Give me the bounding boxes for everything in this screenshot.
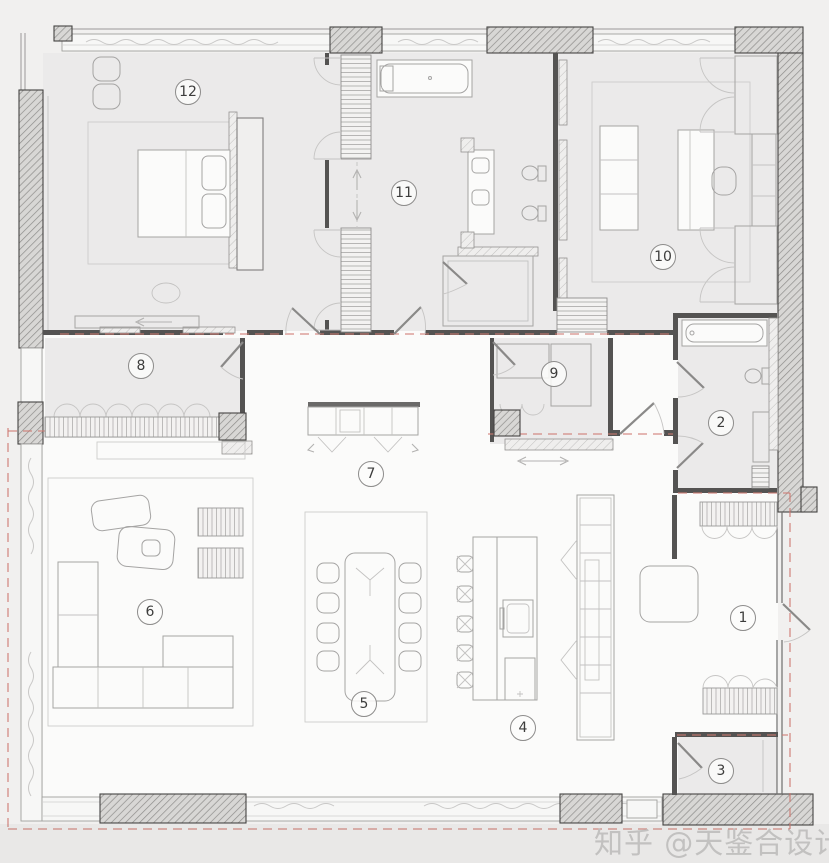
room-label-1: 1 — [730, 605, 756, 631]
floor-plan-drawing — [0, 0, 829, 863]
towel-radiator — [752, 466, 769, 488]
room-label-8: 8 — [128, 353, 154, 379]
room-label-2: 2 — [708, 410, 734, 436]
chaise — [163, 636, 233, 667]
room-label-6: 6 — [137, 599, 163, 625]
sofa — [600, 126, 638, 230]
bench — [198, 548, 243, 578]
bench — [198, 508, 243, 536]
room-label-12: 12 — [175, 79, 201, 105]
room-label-10: 10 — [650, 244, 676, 270]
desk — [678, 130, 714, 230]
closet-rail — [45, 417, 219, 437]
room-label-9: 9 — [541, 361, 567, 387]
wardrobe — [341, 55, 371, 159]
closet — [703, 688, 777, 714]
closet — [700, 502, 777, 526]
room-label-3: 3 — [708, 758, 734, 784]
dining-table — [345, 553, 395, 701]
room-label-5: 5 — [351, 691, 377, 717]
watermark: 知乎 @天鉴合设计 — [594, 820, 829, 862]
floor-plan-page: 123456789101112 知乎 @天鉴合设计 — [0, 0, 829, 863]
room-label-11: 11 — [391, 180, 417, 206]
wardrobe — [341, 228, 371, 332]
room-label-4: 4 — [510, 715, 536, 741]
room-label-7: 7 — [358, 461, 384, 487]
